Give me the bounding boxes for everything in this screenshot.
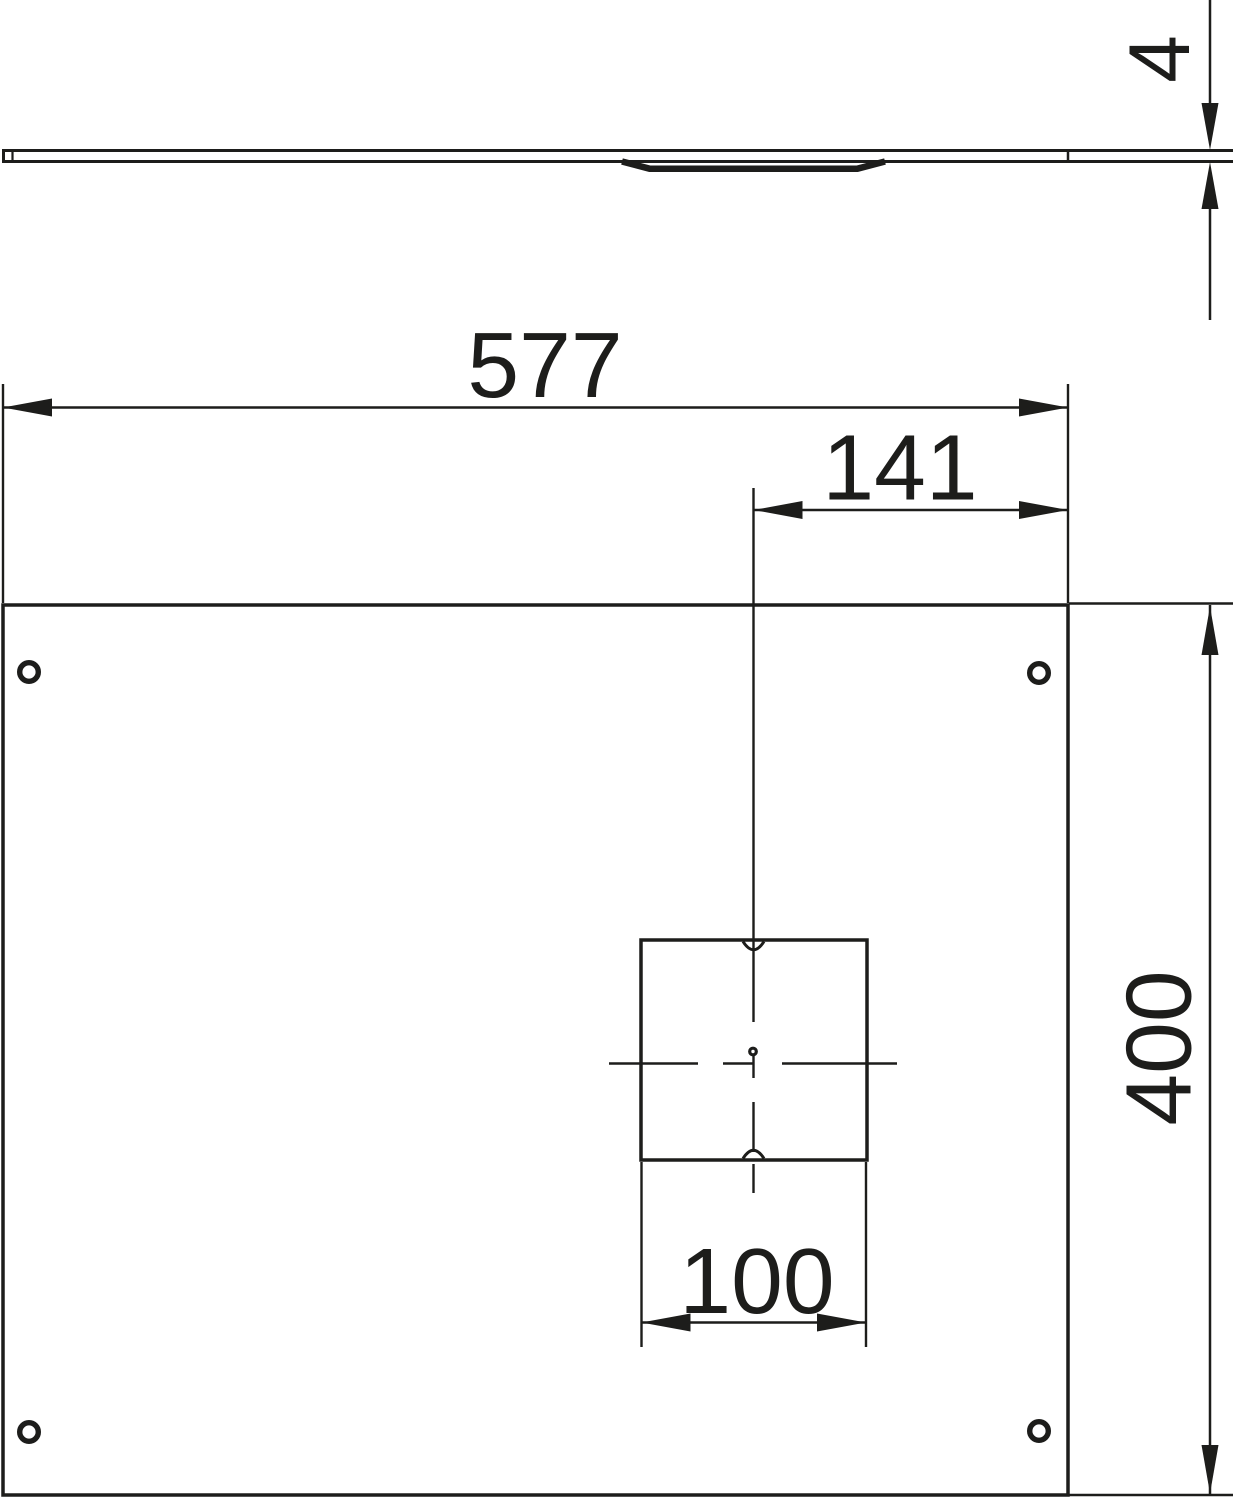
dim-label-cutout-width: 100 [679,1229,834,1333]
dim-arrow-down [1202,103,1219,150]
dim-arrow-down [1202,1445,1219,1494]
dim-arrow-up [1202,607,1219,656]
dim-label-height: 400 [1107,970,1211,1125]
mounting-hole-bottom-left [20,1423,39,1442]
dim-arrow-right [1019,501,1068,519]
dim-arrow-left [3,399,52,417]
offset-dimension: 141 [754,416,1069,520]
side-view [2,149,1233,169]
dim-label-thickness: 4 [1112,35,1208,83]
dim-arrow-right [1019,399,1068,417]
mounting-hole-bottom-right [1030,1422,1049,1441]
dim-arrow-left [754,501,803,519]
mounting-hole-top-left [20,663,39,682]
dim-label-offset: 141 [822,416,977,520]
mounting-hole-top-right [1030,664,1049,683]
technical-drawing: 4 577 141 [0,0,1233,1500]
height-dimension: 400 [1069,604,1233,1496]
dim-label-width: 577 [467,313,622,417]
center-mark-circle [750,1048,757,1055]
cutout-center-lines [609,488,897,1193]
plan-view [3,605,1068,1495]
plate-outline [3,605,1068,1495]
dim-arrow-up [1202,162,1219,209]
